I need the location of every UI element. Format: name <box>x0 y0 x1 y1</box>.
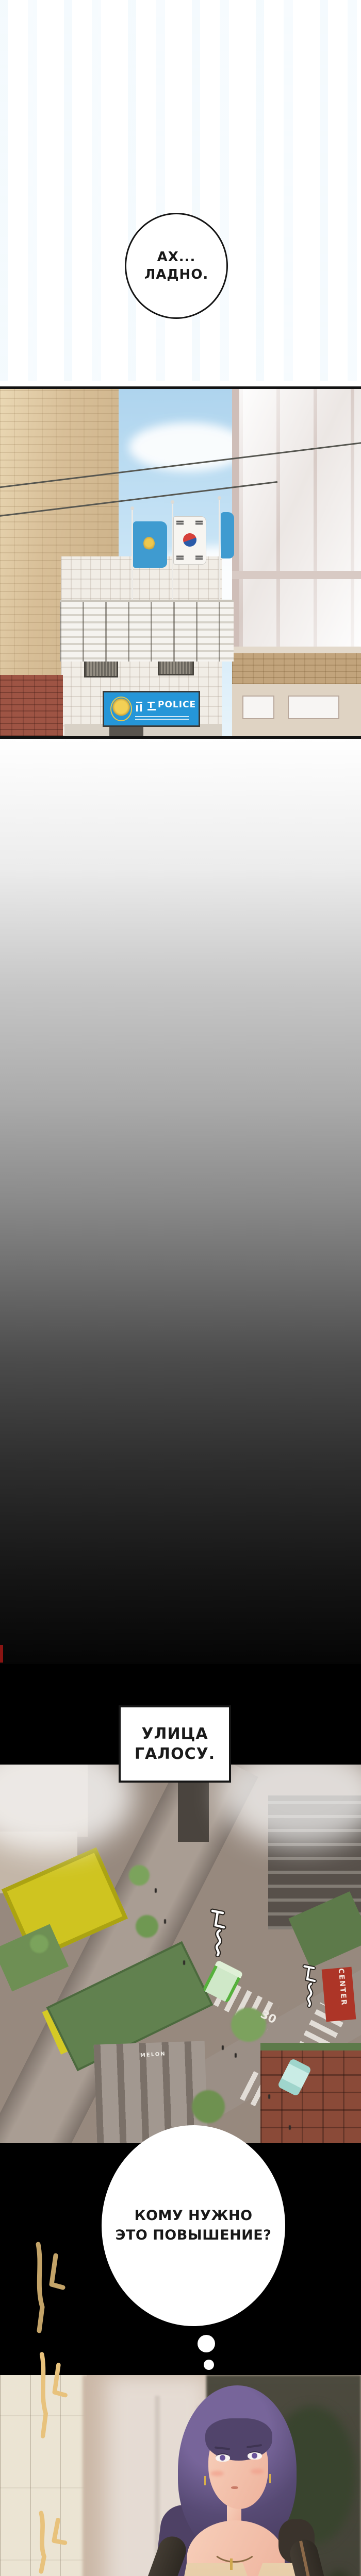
thought-trail-dot <box>198 2335 215 2352</box>
caption-text: ГАЛОСУ. <box>135 1744 215 1764</box>
panel-border-bottom <box>0 736 361 739</box>
tree <box>231 2008 266 2042</box>
korean-flag <box>173 516 206 565</box>
pedestrian-speck <box>268 2094 270 2099</box>
brick-band <box>232 653 361 684</box>
thought-text: ЭТО ПОВЫШЕНИЕ? <box>116 2226 272 2245</box>
panel-police-building: POLICE <box>0 386 361 739</box>
railing-posts <box>60 602 234 662</box>
speech-bubble-top: АХ... ЛАДНО. <box>125 213 228 319</box>
tree <box>136 1915 158 1938</box>
cornice <box>228 647 361 653</box>
korean-police-glyphs <box>135 701 159 712</box>
pedestrian-speck <box>155 1888 157 1893</box>
caption-box: УЛИЦА ГАЛОСУ. <box>119 1705 231 1783</box>
sfx-swish-icon <box>31 2510 71 2574</box>
necklace <box>210 2530 259 2563</box>
window-grid <box>239 386 361 647</box>
tall-window-building <box>232 386 361 739</box>
flag-pole-top <box>171 500 174 504</box>
red-brick-building <box>260 2050 361 2143</box>
red-brick-wall <box>0 675 63 736</box>
trigram-icon <box>176 555 184 560</box>
hair-bangs <box>205 2418 272 2461</box>
sfx-swish-icon <box>29 2240 70 2335</box>
blush <box>251 2469 264 2474</box>
police-emblem-icon <box>143 537 155 550</box>
watermark-fragment <box>0 1645 3 1663</box>
storefront-window <box>288 696 339 719</box>
speech-text: АХ... <box>157 248 196 266</box>
fog-overlay <box>222 1765 361 1847</box>
blush <box>210 2471 224 2476</box>
mouth <box>231 2486 238 2489</box>
necklace-pendant <box>230 2558 233 2570</box>
center-sign: CENTER <box>322 1967 356 2022</box>
floor-band <box>232 571 361 579</box>
storefront-window <box>242 696 274 719</box>
speech-text: ЛАДНО. <box>144 266 209 283</box>
thought-bubble-promotion: КОМУ НУЖНО ЭТО ПОВЫШЕНИЕ? <box>102 2125 285 2326</box>
caption-text: УЛИЦА <box>141 1724 208 1744</box>
pedestrian-speck <box>235 2053 237 2058</box>
police-emblem-icon <box>110 697 132 721</box>
trigram-icon <box>195 555 203 560</box>
tree <box>192 2090 225 2123</box>
police-sign: POLICE <box>103 691 200 727</box>
panel-city-aerial: MELON CENTER 30 <box>0 1765 361 2143</box>
eye <box>248 2451 262 2460</box>
sfx-swish-icon <box>33 2350 72 2441</box>
white-to-black-gradient <box>0 739 361 1664</box>
pedestrian-speck <box>289 2125 291 2130</box>
tree <box>30 1935 48 1953</box>
trigram-icon <box>195 520 203 524</box>
sfx-bagle-icon <box>298 1963 324 2008</box>
sign-underline <box>135 716 189 717</box>
faded-background-streaks <box>0 0 361 381</box>
blue-flag <box>221 512 234 558</box>
flag-pole-top <box>130 506 134 510</box>
earring <box>204 2476 206 2485</box>
iris <box>252 2453 257 2459</box>
police-flag <box>133 521 167 568</box>
taegeuk-icon <box>183 533 196 547</box>
trigram-icon <box>176 520 184 524</box>
pedestrian-speck <box>222 2045 224 2050</box>
dark-building <box>178 1775 209 1842</box>
fog-overlay <box>0 1765 134 1852</box>
thought-trail-dot <box>204 2360 214 2370</box>
earring <box>269 2474 271 2483</box>
iris <box>220 2455 225 2461</box>
panel-border-top <box>0 386 361 389</box>
thought-text: КОМУ НУЖНО <box>134 2206 252 2226</box>
pedestrian-speck <box>164 1919 166 1924</box>
sfx-bagle-icon <box>205 1908 234 1957</box>
eye <box>216 2453 230 2462</box>
police-sign-label: POLICE <box>158 700 196 710</box>
comic-page: АХ... ЛАДНО. <box>0 0 361 2576</box>
flag-pole-top <box>218 496 221 500</box>
pedestrian-speck <box>183 1960 185 1965</box>
rooftop-railing <box>60 600 234 662</box>
tree <box>129 1865 150 1886</box>
